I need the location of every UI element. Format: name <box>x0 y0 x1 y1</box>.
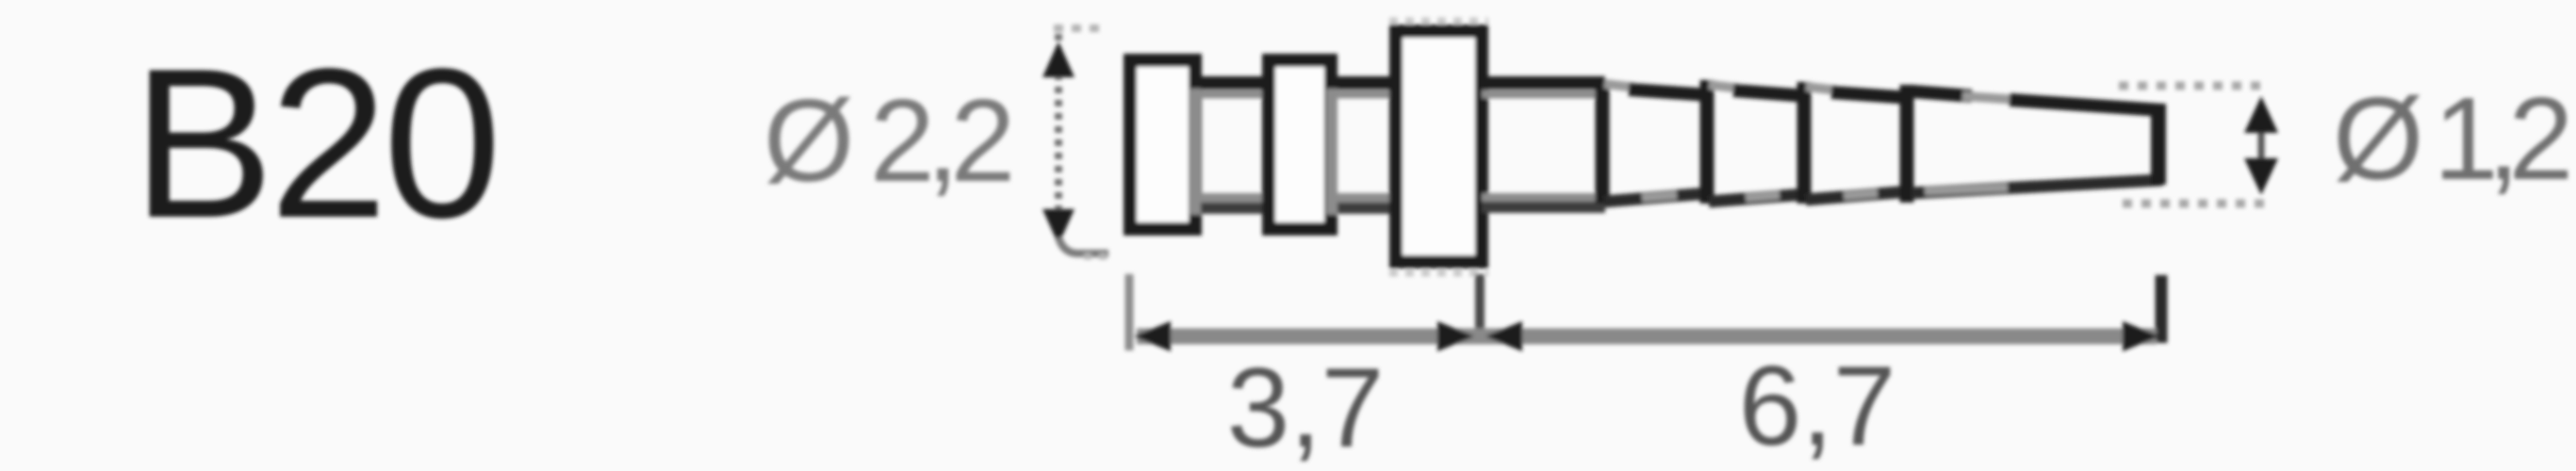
svg-text:6,7: 6,7 <box>1739 343 1896 469</box>
svg-text:Ø 1,2: Ø 1,2 <box>2333 74 2568 204</box>
svg-text:B20: B20 <box>132 24 497 262</box>
svg-text:Ø 2,2: Ø 2,2 <box>763 76 1009 206</box>
svg-text:3,7: 3,7 <box>1227 345 1385 471</box>
